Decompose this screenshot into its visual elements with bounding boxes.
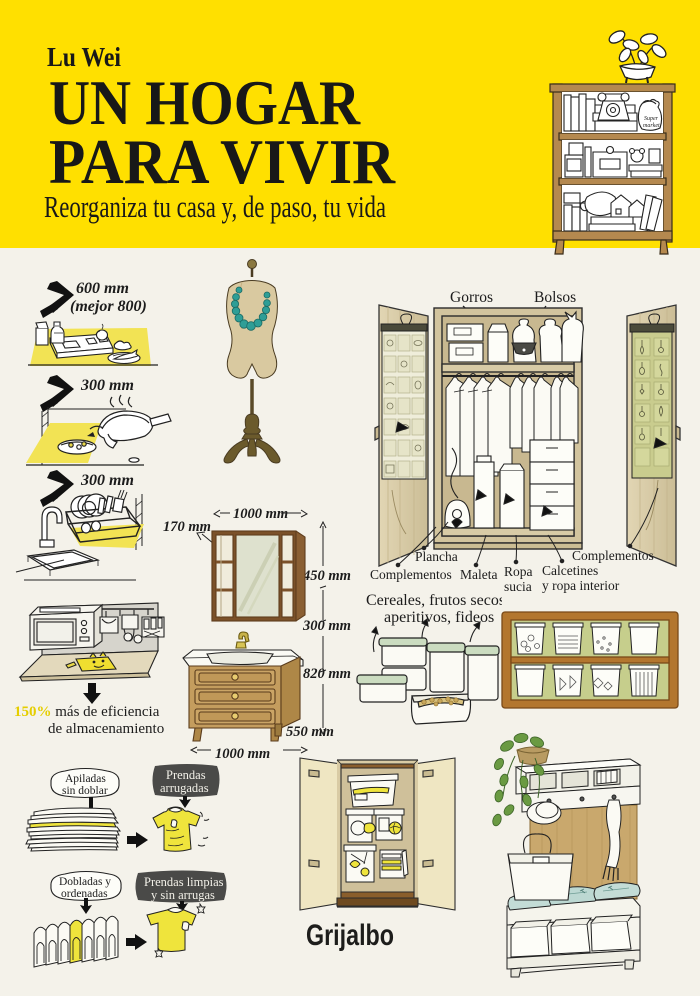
svg-text:Reorganiza tu casa y, de paso,: Reorganiza tu casa y, de paso, tu vida	[44, 189, 386, 224]
svg-text:sin doblar: sin doblar	[62, 785, 108, 797]
svg-text:(mejor 800): (mejor 800)	[70, 298, 147, 315]
svg-text:arrugadas: arrugadas	[160, 781, 209, 795]
svg-text:300 mm: 300 mm	[302, 618, 351, 634]
svg-text:550 mm: 550 mm	[286, 724, 334, 740]
svg-text:600 mm: 600 mm	[76, 280, 129, 297]
svg-text:Gorros: Gorros	[450, 289, 493, 306]
svg-text:Prendas: Prendas	[166, 768, 206, 782]
svg-text:y ropa interior: y ropa interior	[542, 578, 620, 593]
svg-text:Prendas limpias: Prendas limpias	[144, 875, 224, 889]
svg-text:Ropa: Ropa	[504, 564, 533, 579]
svg-text:Cereales, frutos secos,: Cereales, frutos secos,	[366, 592, 502, 609]
svg-text:450 mm: 450 mm	[302, 568, 351, 584]
svg-text:PARA VIVIR: PARA VIVIR	[49, 127, 396, 197]
svg-text:Dobladas y: Dobladas y	[59, 876, 111, 888]
svg-text:820 mm: 820 mm	[303, 666, 351, 682]
svg-text:Apiladas: Apiladas	[65, 773, 106, 785]
svg-text:Complementos: Complementos	[370, 567, 452, 582]
svg-text:Grijalbo: Grijalbo	[306, 919, 394, 952]
svg-text:300 mm: 300 mm	[80, 377, 134, 394]
svg-text:Super: Super	[644, 116, 659, 122]
svg-text:Bolsos: Bolsos	[534, 289, 576, 306]
svg-text:Maleta: Maleta	[460, 567, 497, 582]
svg-text:1000 mm: 1000 mm	[233, 506, 288, 522]
svg-text:300 mm: 300 mm	[80, 472, 134, 489]
svg-text:Plancha: Plancha	[415, 549, 458, 564]
svg-text:Complementos: Complementos	[572, 548, 654, 563]
svg-text:market: market	[643, 123, 660, 129]
svg-text:sucia: sucia	[504, 579, 532, 594]
svg-text:y sin arrugas: y sin arrugas	[151, 888, 215, 902]
svg-text:Calcetines: Calcetines	[542, 563, 598, 578]
